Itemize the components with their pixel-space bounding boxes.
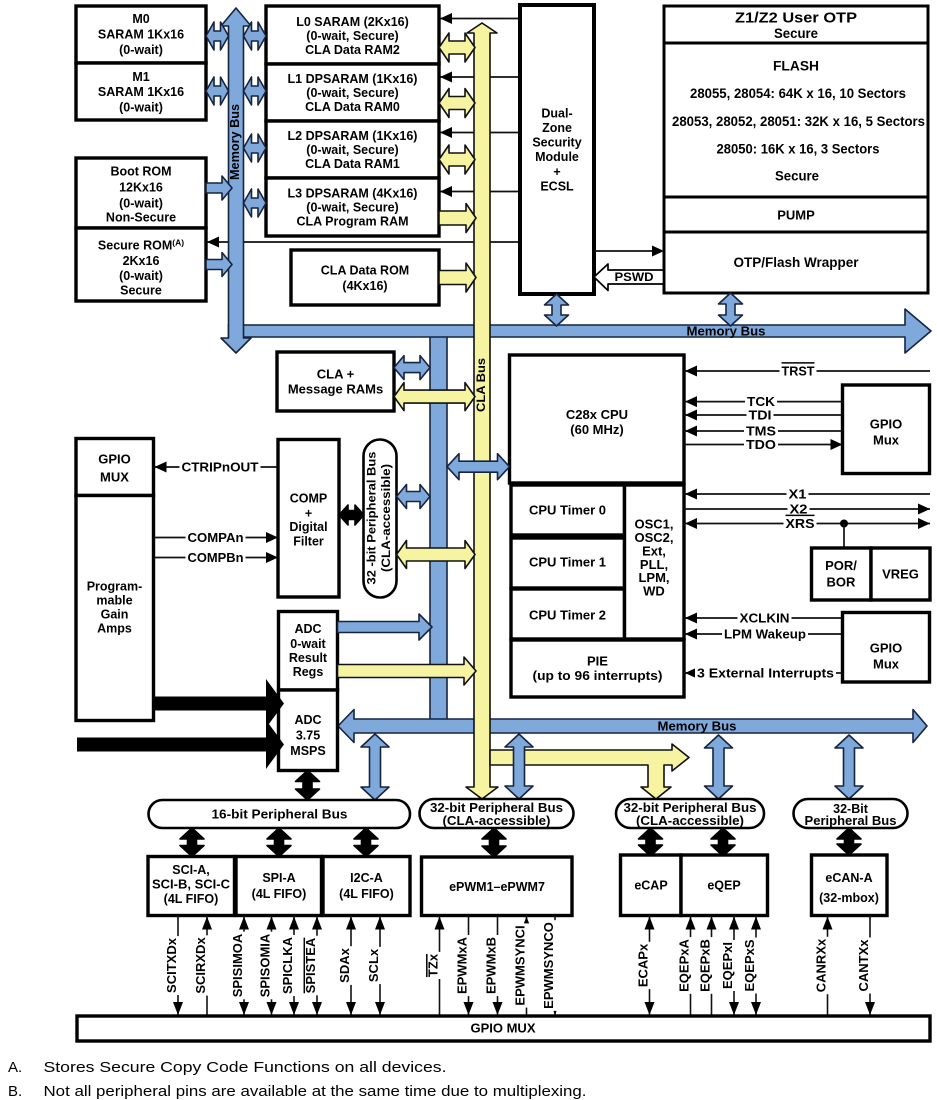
svg-text:L3 DPSARAM (4Kx16): L3 DPSARAM (4Kx16) bbox=[288, 186, 418, 200]
svg-text:CLA +: CLA + bbox=[317, 367, 355, 382]
svg-text:SPISIMOA: SPISIMOA bbox=[230, 933, 245, 997]
svg-text:WD: WD bbox=[643, 584, 665, 599]
svg-text:COMPAn: COMPAn bbox=[188, 531, 244, 545]
svg-text:CANRXx: CANRXx bbox=[813, 938, 828, 992]
svg-text:(0-wait, Secure): (0-wait, Secure) bbox=[306, 200, 398, 214]
svg-text:CANTXx: CANTXx bbox=[856, 939, 871, 992]
svg-text:TRST: TRST bbox=[782, 364, 815, 379]
svg-text:CLA Bus: CLA Bus bbox=[474, 358, 488, 412]
svg-text:MSPS: MSPS bbox=[290, 744, 325, 758]
svg-text:B.: B. bbox=[8, 1083, 22, 1100]
svg-text:eCAP: eCAP bbox=[634, 878, 667, 892]
svg-text:Memory Bus: Memory Bus bbox=[687, 324, 766, 339]
svg-text:EQEPxA: EQEPxA bbox=[676, 939, 691, 992]
svg-text:Security: Security bbox=[532, 136, 581, 150]
svg-text:EQEPxB: EQEPxB bbox=[697, 939, 712, 992]
svg-text:SCI-B, SCI-C: SCI-B, SCI-C bbox=[152, 877, 230, 891]
svg-text:(0-wait): (0-wait) bbox=[119, 269, 163, 283]
svg-text:SPI-A: SPI-A bbox=[262, 871, 295, 885]
svg-text:eCAN-A: eCAN-A bbox=[825, 871, 872, 885]
svg-text:XCLKIN: XCLKIN bbox=[740, 611, 790, 626]
svg-text:3 External Interrupts: 3 External Interrupts bbox=[697, 666, 834, 681]
svg-text:L1 DPSARAM (1Kx16): L1 DPSARAM (1Kx16) bbox=[288, 72, 418, 86]
svg-text:CLA Data RAM2: CLA Data RAM2 bbox=[305, 43, 400, 57]
svg-text:Stores Secure Copy Code Functi: Stores Secure Copy Code Functions on all… bbox=[44, 1059, 447, 1076]
svg-text:SPICLKA: SPICLKA bbox=[280, 936, 295, 994]
svg-text:+: + bbox=[553, 165, 560, 179]
svg-text:M1: M1 bbox=[132, 70, 149, 84]
svg-text:GPIO: GPIO bbox=[98, 452, 131, 467]
svg-text:POR/: POR/ bbox=[825, 558, 857, 573]
svg-text:SARAM 1Kx16: SARAM 1Kx16 bbox=[98, 85, 184, 99]
svg-text:TDO: TDO bbox=[746, 437, 776, 452]
svg-text:M0: M0 bbox=[132, 12, 149, 26]
svg-text:Zone: Zone bbox=[542, 121, 572, 135]
svg-text:(0-wait): (0-wait) bbox=[119, 196, 163, 210]
svg-text:(up to 96 interrupts): (up to 96 interrupts) bbox=[533, 668, 663, 683]
svg-text:(4L FIFO): (4L FIFO) bbox=[252, 887, 307, 901]
svg-text:28055, 28054: 64K x 16, 10 Sec: 28055, 28054: 64K x 16, 10 Sectors bbox=[690, 85, 906, 101]
svg-text:ADC: ADC bbox=[294, 713, 321, 727]
svg-text:(4Kx16): (4Kx16) bbox=[342, 279, 387, 293]
svg-text:Memory Bus: Memory Bus bbox=[658, 719, 737, 734]
svg-text:(0-wait, Secure): (0-wait, Secure) bbox=[306, 86, 398, 100]
svg-text:+: + bbox=[305, 506, 312, 520]
svg-text:PSWD: PSWD bbox=[615, 270, 654, 284]
svg-text:CLA Data RAM1: CLA Data RAM1 bbox=[305, 157, 400, 171]
svg-text:(0-wait, Secure): (0-wait, Secure) bbox=[306, 29, 398, 43]
svg-text:EPWMSYNCI: EPWMSYNCI bbox=[512, 925, 527, 1005]
svg-text:GPIO: GPIO bbox=[870, 641, 903, 656]
svg-text:CPU Timer 2: CPU Timer 2 bbox=[529, 608, 606, 623]
svg-text:XRS: XRS bbox=[786, 516, 815, 531]
svg-text:EQEPxI: EQEPxI bbox=[720, 942, 735, 989]
svg-text:TZx: TZx bbox=[425, 953, 440, 977]
svg-text:SCI-A,: SCI-A, bbox=[172, 863, 210, 877]
svg-text:mable: mable bbox=[96, 593, 132, 607]
svg-text:GPIO MUX: GPIO MUX bbox=[470, 1021, 535, 1036]
svg-text:C28x CPU: C28x CPU bbox=[566, 407, 628, 422]
svg-text:Module: Module bbox=[535, 150, 579, 164]
svg-text:PIE: PIE bbox=[587, 654, 608, 669]
svg-text:EQEPxS: EQEPxS bbox=[742, 939, 757, 991]
svg-text:(32-mbox): (32-mbox) bbox=[819, 891, 879, 905]
svg-text:VREG: VREG bbox=[882, 567, 919, 582]
svg-text:eQEP: eQEP bbox=[707, 878, 740, 892]
svg-text:32-bit Peripheral Bus: 32-bit Peripheral Bus bbox=[624, 801, 757, 815]
svg-text:Z1/Z2 User OTP: Z1/Z2 User OTP bbox=[735, 11, 857, 27]
svg-text:SCIRXDx: SCIRXDx bbox=[193, 937, 208, 994]
svg-text:COMP: COMP bbox=[290, 491, 328, 505]
svg-text:EPWMSYNCO: EPWMSYNCO bbox=[541, 922, 556, 1009]
svg-text:(4L FIFO): (4L FIFO) bbox=[339, 887, 394, 901]
svg-text:ePWM1–ePWM7: ePWM1–ePWM7 bbox=[449, 880, 545, 894]
svg-text:Peripheral Bus: Peripheral Bus bbox=[805, 814, 897, 828]
svg-text:EPWMxB: EPWMxB bbox=[483, 937, 498, 994]
svg-text:ECSL: ECSL bbox=[540, 179, 574, 193]
svg-text:Mux: Mux bbox=[873, 433, 900, 448]
svg-text:32-bit Peripheral Bus: 32-bit Peripheral Bus bbox=[430, 801, 563, 815]
svg-text:3.75: 3.75 bbox=[296, 728, 320, 742]
svg-text:(CLA-accessible): (CLA-accessible) bbox=[443, 814, 551, 828]
svg-text:A.: A. bbox=[8, 1059, 22, 1076]
svg-text:CLA Data RAM0: CLA Data RAM0 bbox=[305, 100, 400, 114]
svg-text:32 -bit Peripheral Bus: 32 -bit Peripheral Bus bbox=[367, 452, 379, 585]
svg-text:CLA Data ROM: CLA Data ROM bbox=[321, 263, 409, 277]
svg-text:OTP/Flash Wrapper: OTP/Flash Wrapper bbox=[733, 255, 859, 270]
svg-text:GPIO: GPIO bbox=[870, 417, 903, 432]
svg-text:COMPBn: COMPBn bbox=[188, 551, 244, 565]
svg-text:SCLx: SCLx bbox=[366, 948, 381, 982]
svg-text:SCITXDx: SCITXDx bbox=[164, 937, 179, 993]
svg-text:X2: X2 bbox=[790, 502, 808, 517]
svg-text:Secure ROM(A): Secure ROM(A) bbox=[98, 237, 184, 252]
svg-text:CPU Timer 0: CPU Timer 0 bbox=[529, 503, 606, 518]
svg-text:(4L FIFO): (4L FIFO) bbox=[164, 892, 219, 906]
svg-text:ADC: ADC bbox=[294, 622, 321, 636]
svg-text:Digital: Digital bbox=[289, 520, 327, 534]
svg-text:28053, 28052, 28051: 32K x 16,: 28053, 28052, 28051: 32K x 16, 5 Sectors bbox=[672, 113, 925, 129]
svg-text:(60 MHz): (60 MHz) bbox=[570, 422, 623, 437]
svg-text:SDAx: SDAx bbox=[337, 947, 352, 982]
svg-text:PUMP: PUMP bbox=[777, 208, 815, 223]
svg-text:CLA Program RAM: CLA Program RAM bbox=[296, 214, 408, 228]
svg-text:L2 DPSARAM (1Kx16): L2 DPSARAM (1Kx16) bbox=[288, 129, 418, 143]
svg-text:12Kx16: 12Kx16 bbox=[119, 180, 163, 194]
svg-text:(CLA-accessible): (CLA-accessible) bbox=[381, 464, 393, 572]
svg-text:16-bit Peripheral Bus: 16-bit Peripheral Bus bbox=[212, 807, 348, 821]
svg-text:SPISTEA: SPISTEA bbox=[303, 937, 318, 993]
svg-text:Not all peripheral pins are av: Not all peripheral pins are available at… bbox=[44, 1083, 587, 1100]
svg-text:MUX: MUX bbox=[100, 470, 129, 485]
svg-text:SPISOMIA: SPISOMIA bbox=[257, 933, 272, 997]
svg-text:(0-wait, Secure): (0-wait, Secure) bbox=[306, 143, 398, 157]
svg-text:Memory Bus: Memory Bus bbox=[227, 104, 242, 180]
svg-text:(0-wait): (0-wait) bbox=[119, 43, 163, 57]
svg-text:ECAPx: ECAPx bbox=[635, 943, 650, 987]
svg-text:Program-: Program- bbox=[87, 579, 143, 593]
svg-text:CTRIPnOUT: CTRIPnOUT bbox=[182, 460, 259, 474]
svg-text:Secure: Secure bbox=[774, 26, 818, 41]
svg-text:Regs: Regs bbox=[293, 665, 324, 679]
svg-text:Result: Result bbox=[289, 651, 328, 665]
svg-text:Mux: Mux bbox=[873, 657, 900, 672]
svg-text:Dual-: Dual- bbox=[541, 106, 572, 120]
svg-text:28050: 16K x 16, 3 Sectors: 28050: 16K x 16, 3 Sectors bbox=[717, 140, 880, 156]
svg-text:Non-Secure: Non-Secure bbox=[106, 210, 176, 224]
svg-text:Filter: Filter bbox=[293, 534, 324, 548]
svg-text:EPWMxA: EPWMxA bbox=[454, 936, 469, 994]
svg-text:X1: X1 bbox=[789, 487, 807, 502]
svg-text:FLASH: FLASH bbox=[773, 58, 819, 74]
svg-text:(CLA-accessible): (CLA-accessible) bbox=[636, 814, 744, 828]
svg-text:I2C-A: I2C-A bbox=[350, 871, 383, 885]
svg-text:Secure: Secure bbox=[775, 167, 819, 183]
svg-text:Gain: Gain bbox=[101, 607, 129, 621]
svg-text:TDI: TDI bbox=[749, 408, 772, 423]
svg-text:CPU Timer 1: CPU Timer 1 bbox=[529, 555, 606, 570]
svg-text:0-wait: 0-wait bbox=[290, 637, 326, 651]
svg-text:LPM Wakeup: LPM Wakeup bbox=[724, 627, 806, 642]
svg-text:L0 SARAM (2Kx16): L0 SARAM (2Kx16) bbox=[296, 15, 409, 29]
svg-text:(0-wait): (0-wait) bbox=[119, 100, 163, 114]
svg-text:Message RAMs: Message RAMs bbox=[288, 382, 383, 397]
svg-text:BOR: BOR bbox=[827, 575, 857, 590]
svg-text:SARAM 1Kx16: SARAM 1Kx16 bbox=[98, 27, 184, 41]
svg-text:Amps: Amps bbox=[97, 621, 132, 635]
svg-text:Secure: Secure bbox=[120, 283, 162, 297]
svg-text:Boot ROM: Boot ROM bbox=[110, 164, 171, 178]
svg-text:2Kx16: 2Kx16 bbox=[123, 254, 160, 268]
